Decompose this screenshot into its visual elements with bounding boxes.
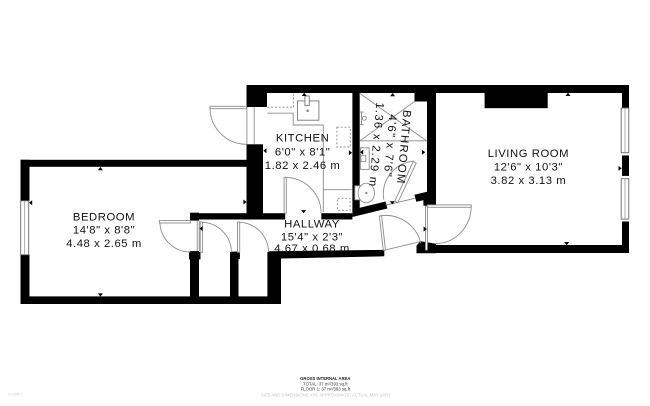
svg-text:4.67 x 0.68 m: 4.67 x 0.68 m [274,243,350,255]
svg-text:BEDROOM: BEDROOM [73,211,135,223]
svg-text:HALLWAY: HALLWAY [284,219,340,231]
svg-text:GROSS INTERNAL AREA: GROSS INTERNAL AREA [300,376,350,381]
svg-text:LIVING ROOM: LIVING ROOM [488,148,569,160]
svg-text:FLOOR 1: FLOOR 1 [9,393,23,397]
svg-text:FLOOR 1: 37 m²/393 sq.ft: FLOOR 1: 37 m²/393 sq.ft [301,387,351,392]
svg-text:KITCHEN: KITCHEN [276,133,329,145]
svg-text:3.82 x 3.13 m: 3.82 x 3.13 m [491,175,567,187]
svg-text:1.82 x 2.46 m: 1.82 x 2.46 m [265,160,341,172]
svg-text:15'4" x 2'3": 15'4" x 2'3" [281,231,343,243]
svg-text:SIZE AND DIMENSIONS ARE APPROX: SIZE AND DIMENSIONS ARE APPROXIMATE, ACT… [261,393,391,398]
svg-text:6'0" x 8'1": 6'0" x 8'1" [275,146,330,158]
svg-text:12'6" x 10'3": 12'6" x 10'3" [494,162,563,174]
svg-text:14'8" x 8'8": 14'8" x 8'8" [73,225,135,237]
svg-text:4.48 x 2.65 m: 4.48 x 2.65 m [66,238,142,250]
svg-text:TOTAL: 37 m²/393 sq.ft: TOTAL: 37 m²/393 sq.ft [303,381,348,386]
